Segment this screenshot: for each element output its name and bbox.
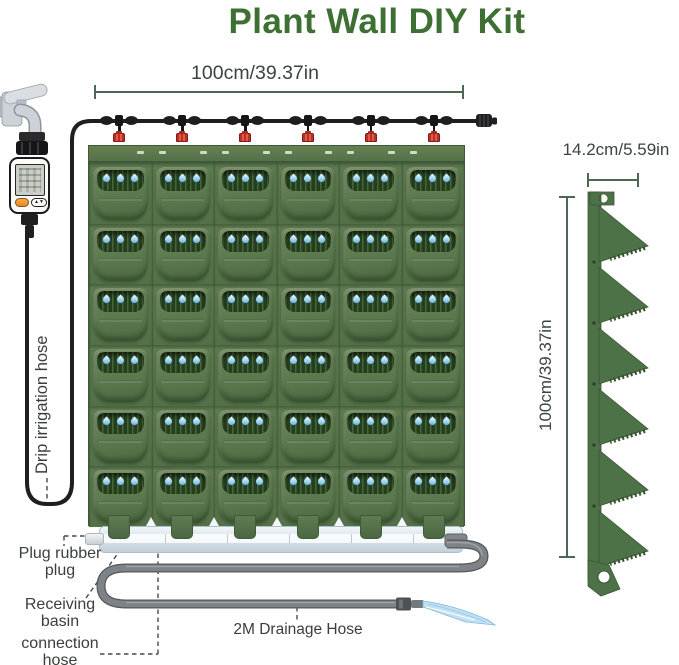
timer-outlet-stem bbox=[25, 225, 34, 238]
connection-hose-label: connection hose bbox=[6, 635, 114, 665]
arrow-down-icon: ▼ bbox=[39, 199, 44, 205]
timer-lcd-display bbox=[15, 164, 45, 196]
plug-rubber-plug-label: Plug rubber plug bbox=[6, 545, 114, 579]
drainage-hose bbox=[101, 543, 484, 605]
panel-width-dimension-label: 14.2cm/5.59in bbox=[548, 140, 679, 160]
hose-end-cap bbox=[476, 114, 497, 127]
receiving-basin-label: Receiving basin bbox=[6, 596, 114, 630]
timer-dial-button bbox=[15, 198, 29, 207]
drip-irrigation-hose-label: Drip irrigation hose bbox=[33, 330, 57, 480]
timer-outlet-fitting bbox=[21, 214, 38, 225]
water-spray bbox=[423, 601, 495, 625]
drip-hose bbox=[27, 121, 477, 504]
panel-height-dimension-label: 100cm/39.37in bbox=[536, 310, 560, 440]
hose-coupler bbox=[396, 598, 424, 611]
page-title: Plant Wall DIY Kit bbox=[75, 2, 679, 42]
product-infographic: Plant Wall DIY Kit 100cm/39.37in 14.2cm/… bbox=[0, 0, 679, 665]
irrigation-timer: ▲▼ bbox=[9, 157, 50, 214]
wall-width-dimension-label: 100cm/39.37in bbox=[163, 62, 347, 85]
drainage-hose-label: 2M Drainage Hose bbox=[208, 621, 388, 639]
timer-arrows-button: ▲▼ bbox=[31, 198, 47, 207]
